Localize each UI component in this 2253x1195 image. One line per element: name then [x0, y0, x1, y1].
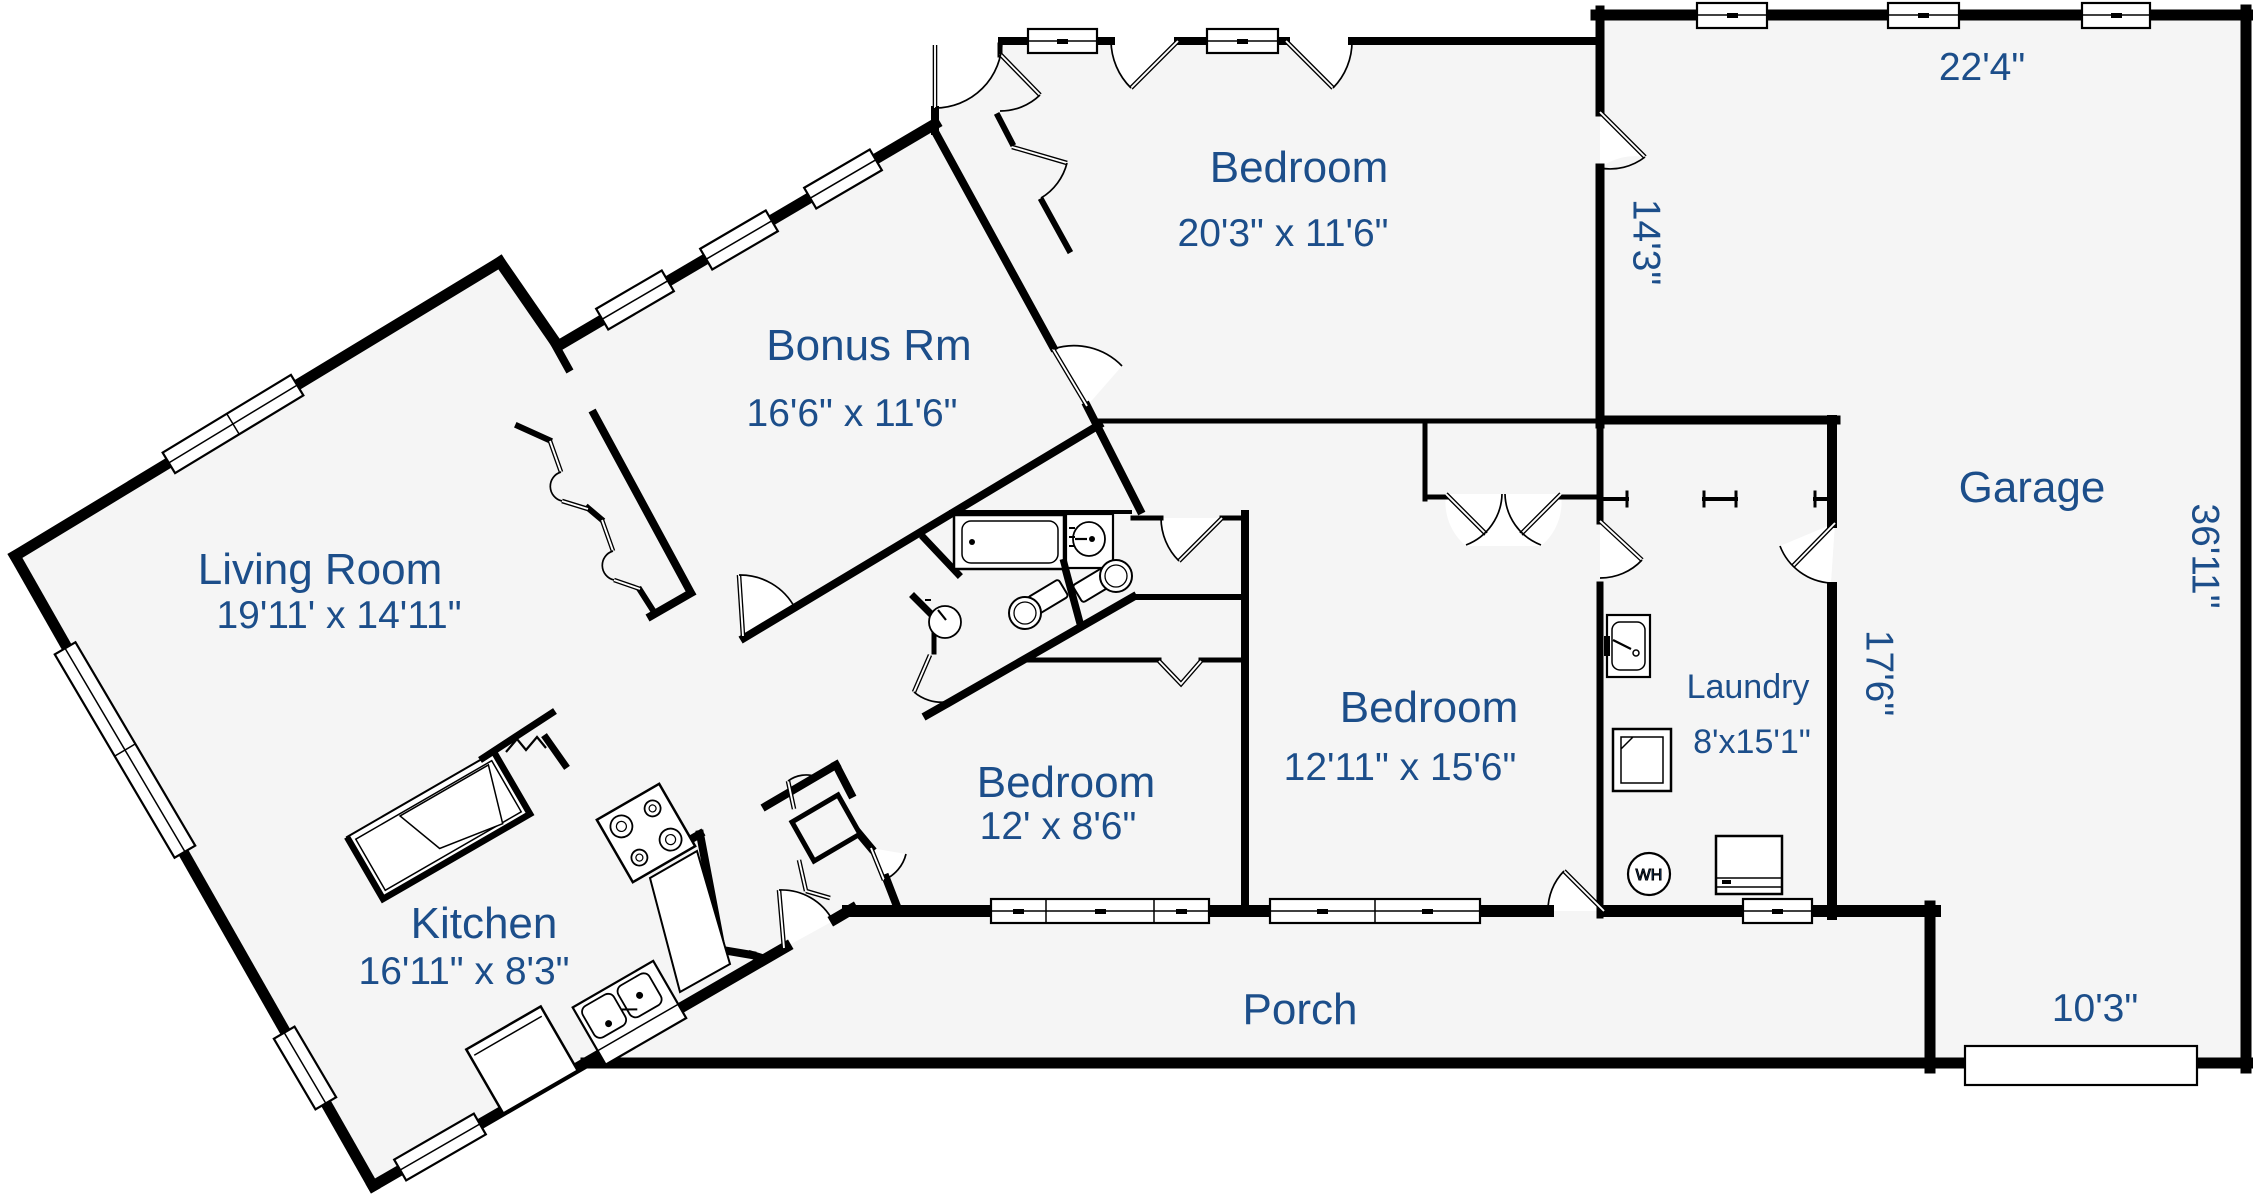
svg-text:16'6" x 11'6": 16'6" x 11'6": [747, 392, 958, 435]
svg-text:Porch: Porch: [1243, 985, 1358, 1034]
svg-text:Bonus Rm: Bonus Rm: [766, 321, 971, 370]
svg-text:Kitchen: Kitchen: [411, 899, 558, 948]
svg-text:WH: WH: [1636, 867, 1663, 884]
svg-text:Bedroom: Bedroom: [1340, 683, 1519, 732]
svg-text:Laundry: Laundry: [1687, 668, 1810, 706]
svg-text:10'3": 10'3": [2052, 987, 2138, 1030]
svg-text:20'3" x 11'6": 20'3" x 11'6": [1178, 212, 1389, 255]
svg-text:22'4": 22'4": [1939, 46, 2025, 89]
svg-text:19'11' x 14'11": 19'11' x 14'11": [216, 594, 461, 637]
svg-text:12'11" x 15'6": 12'11" x 15'6": [1284, 746, 1517, 789]
svg-text:14'3": 14'3": [1625, 199, 1668, 285]
svg-text:12' x 8'6": 12' x 8'6": [980, 805, 1137, 848]
svg-text:17'6": 17'6": [1858, 630, 1901, 716]
svg-text:36'11": 36'11": [2184, 503, 2227, 608]
svg-text:16'11" x 8'3": 16'11" x 8'3": [359, 950, 570, 993]
svg-text:Living Room: Living Room: [198, 545, 443, 594]
svg-text:Bedroom: Bedroom: [977, 758, 1156, 807]
svg-text:Bedroom: Bedroom: [1210, 143, 1389, 192]
svg-text:Garage: Garage: [1959, 463, 2106, 512]
svg-text:8'x15'1": 8'x15'1": [1693, 723, 1811, 761]
